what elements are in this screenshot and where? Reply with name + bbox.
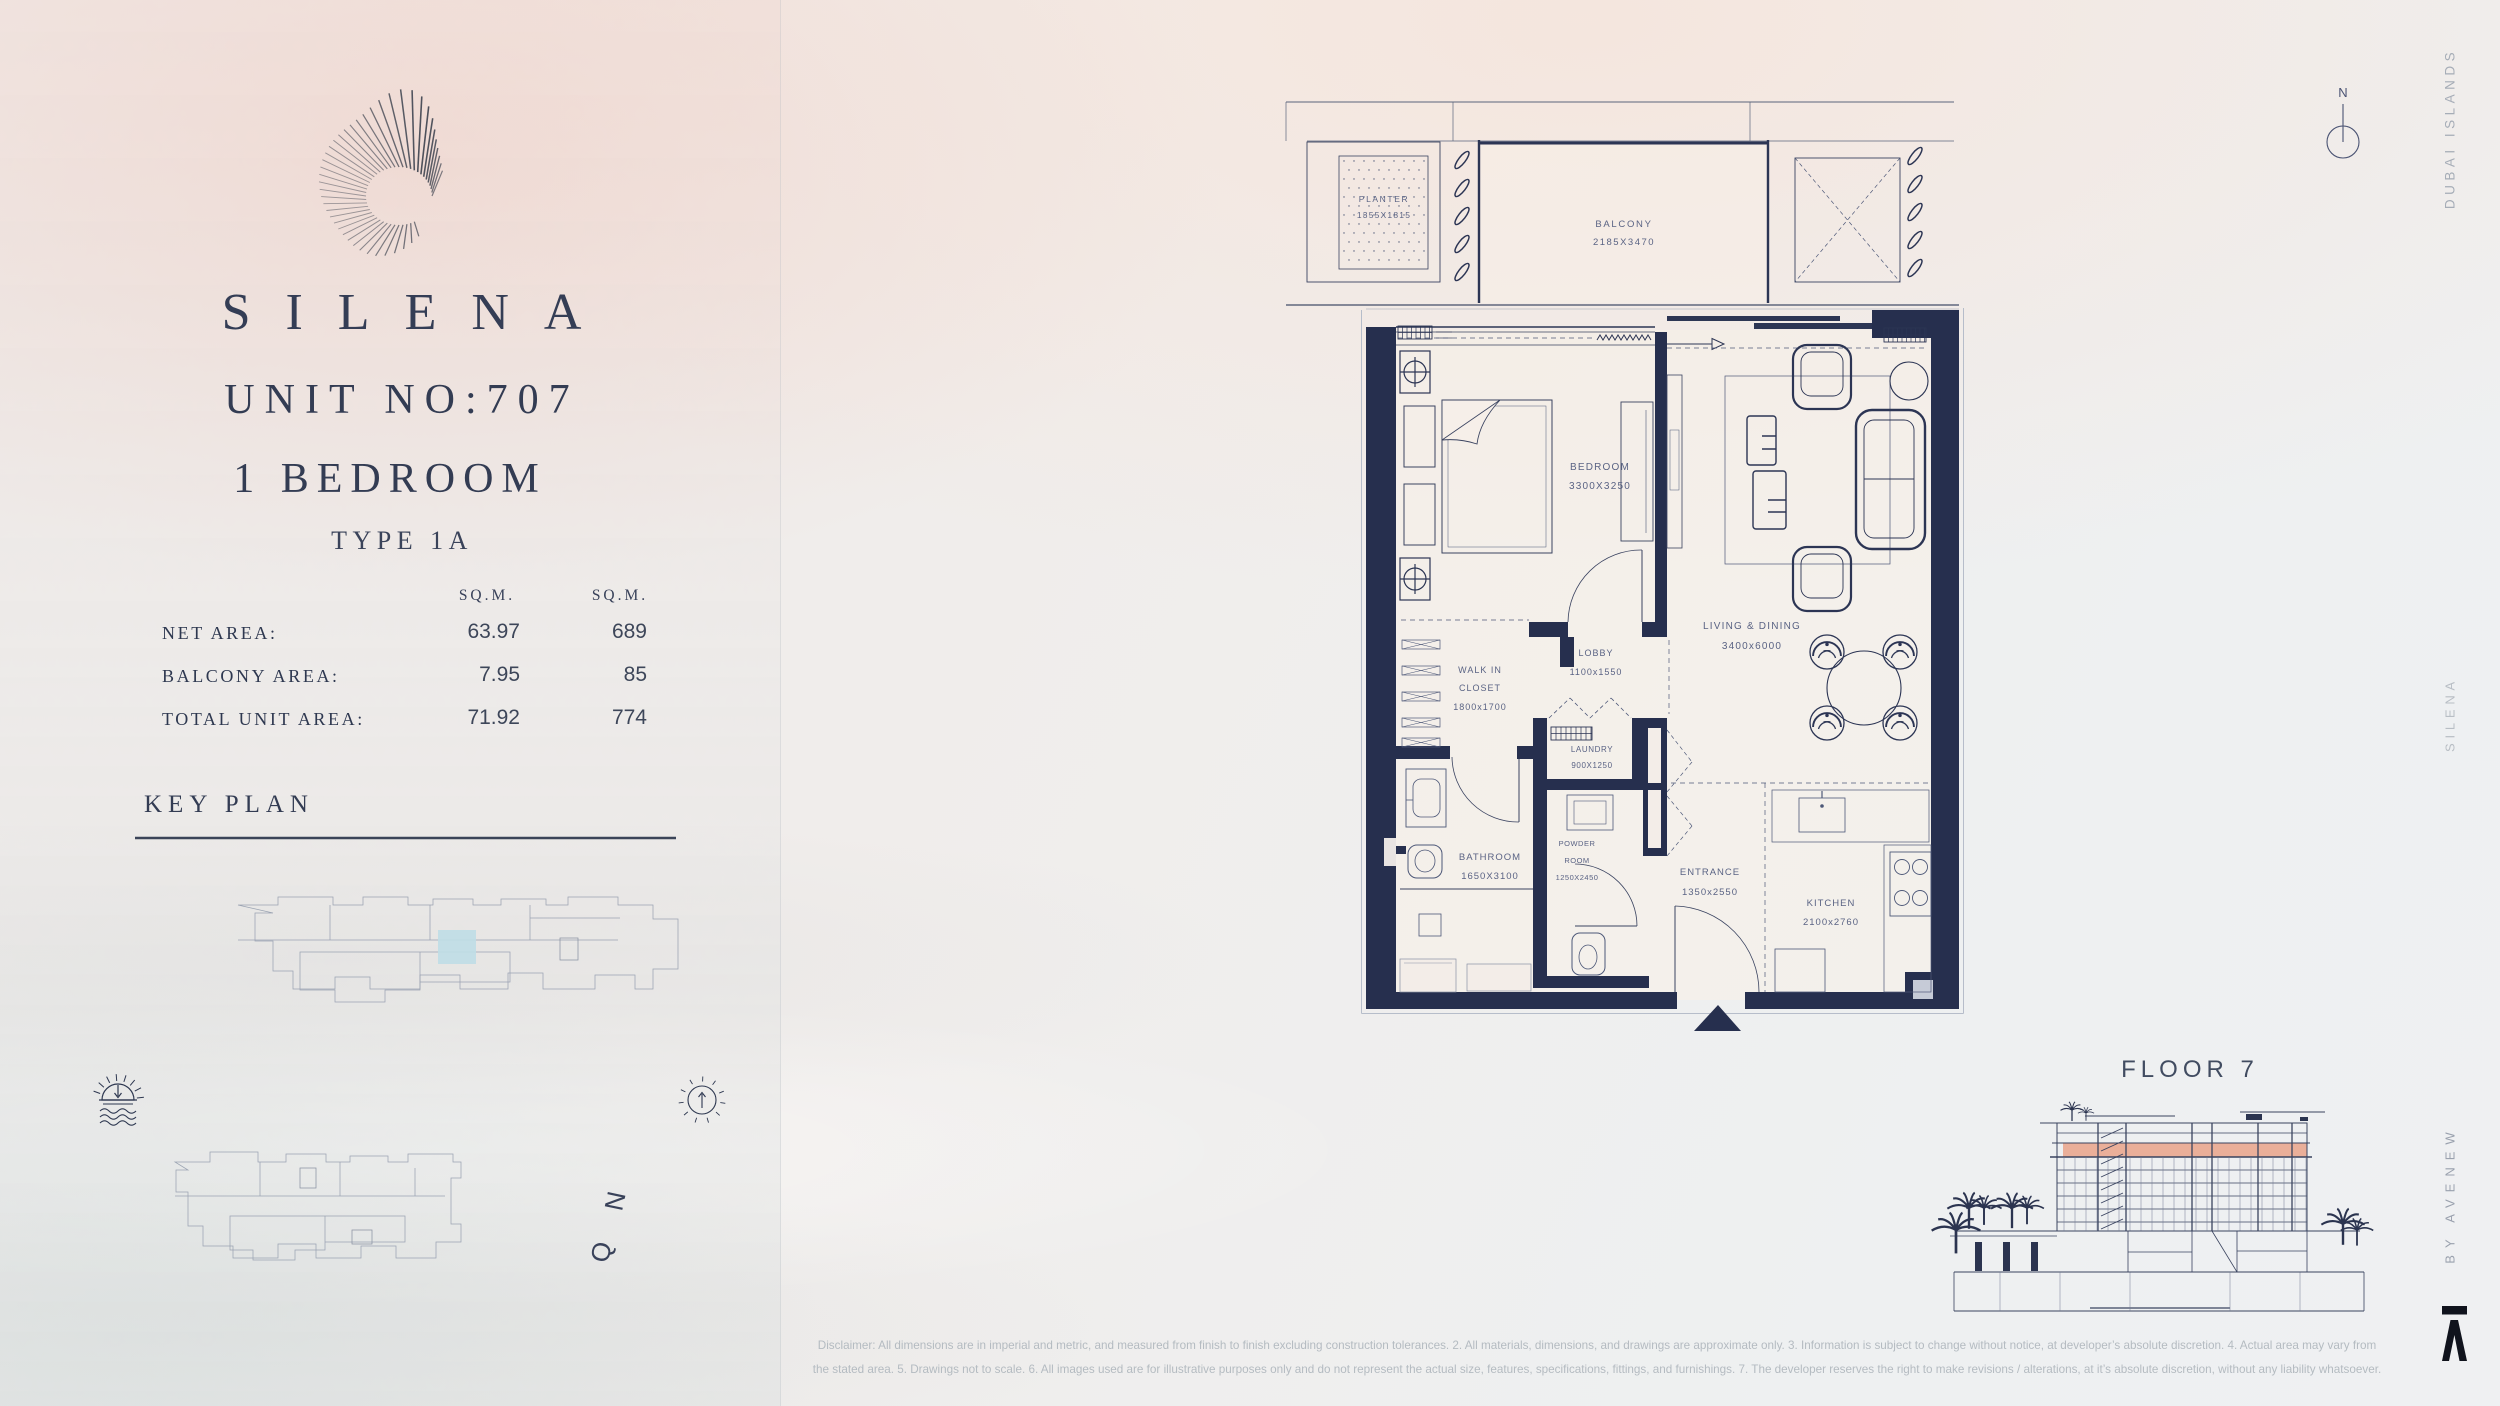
svg-text:3300X3250: 3300X3250 (1569, 481, 1631, 492)
svg-text:1350x2550: 1350x2550 (1682, 887, 1738, 898)
svg-text:1100x1550: 1100x1550 (1570, 667, 1623, 677)
svg-text:900X1250: 900X1250 (1571, 761, 1612, 770)
svg-text:LIVING & DINING: LIVING & DINING (1703, 621, 1801, 632)
svg-text:PLANTER: PLANTER (1359, 194, 1409, 204)
svg-text:BATHROOM: BATHROOM (1459, 852, 1521, 863)
svg-text:3400x6000: 3400x6000 (1722, 641, 1782, 652)
svg-text:WALK IN: WALK IN (1458, 665, 1502, 675)
svg-text:BEDROOM: BEDROOM (1570, 462, 1630, 473)
svg-text:ENTRANCE: ENTRANCE (1680, 867, 1740, 878)
svg-text:1250X2450: 1250X2450 (1556, 873, 1599, 882)
svg-text:N: N (2338, 85, 2347, 100)
svg-text:LOBBY: LOBBY (1578, 648, 1613, 658)
svg-text:ROOM: ROOM (1564, 856, 1589, 865)
svg-text:CLOSET: CLOSET (1459, 683, 1501, 693)
svg-text:2185X3470: 2185X3470 (1593, 237, 1655, 248)
svg-text:1800x1700: 1800x1700 (1453, 702, 1507, 712)
svg-text:2100x2760: 2100x2760 (1803, 917, 1859, 928)
svg-text:1650X3100: 1650X3100 (1461, 871, 1519, 882)
svg-text:POWDER: POWDER (1559, 839, 1596, 848)
svg-text:KITCHEN: KITCHEN (1807, 898, 1856, 909)
svg-text:Q: Q (584, 1239, 618, 1265)
svg-text:BALCONY: BALCONY (1595, 219, 1652, 230)
svg-text:LAUNDRY: LAUNDRY (1571, 745, 1613, 754)
svg-text:1355X1815: 1355X1815 (1357, 210, 1411, 220)
svg-text:N: N (598, 1189, 631, 1214)
